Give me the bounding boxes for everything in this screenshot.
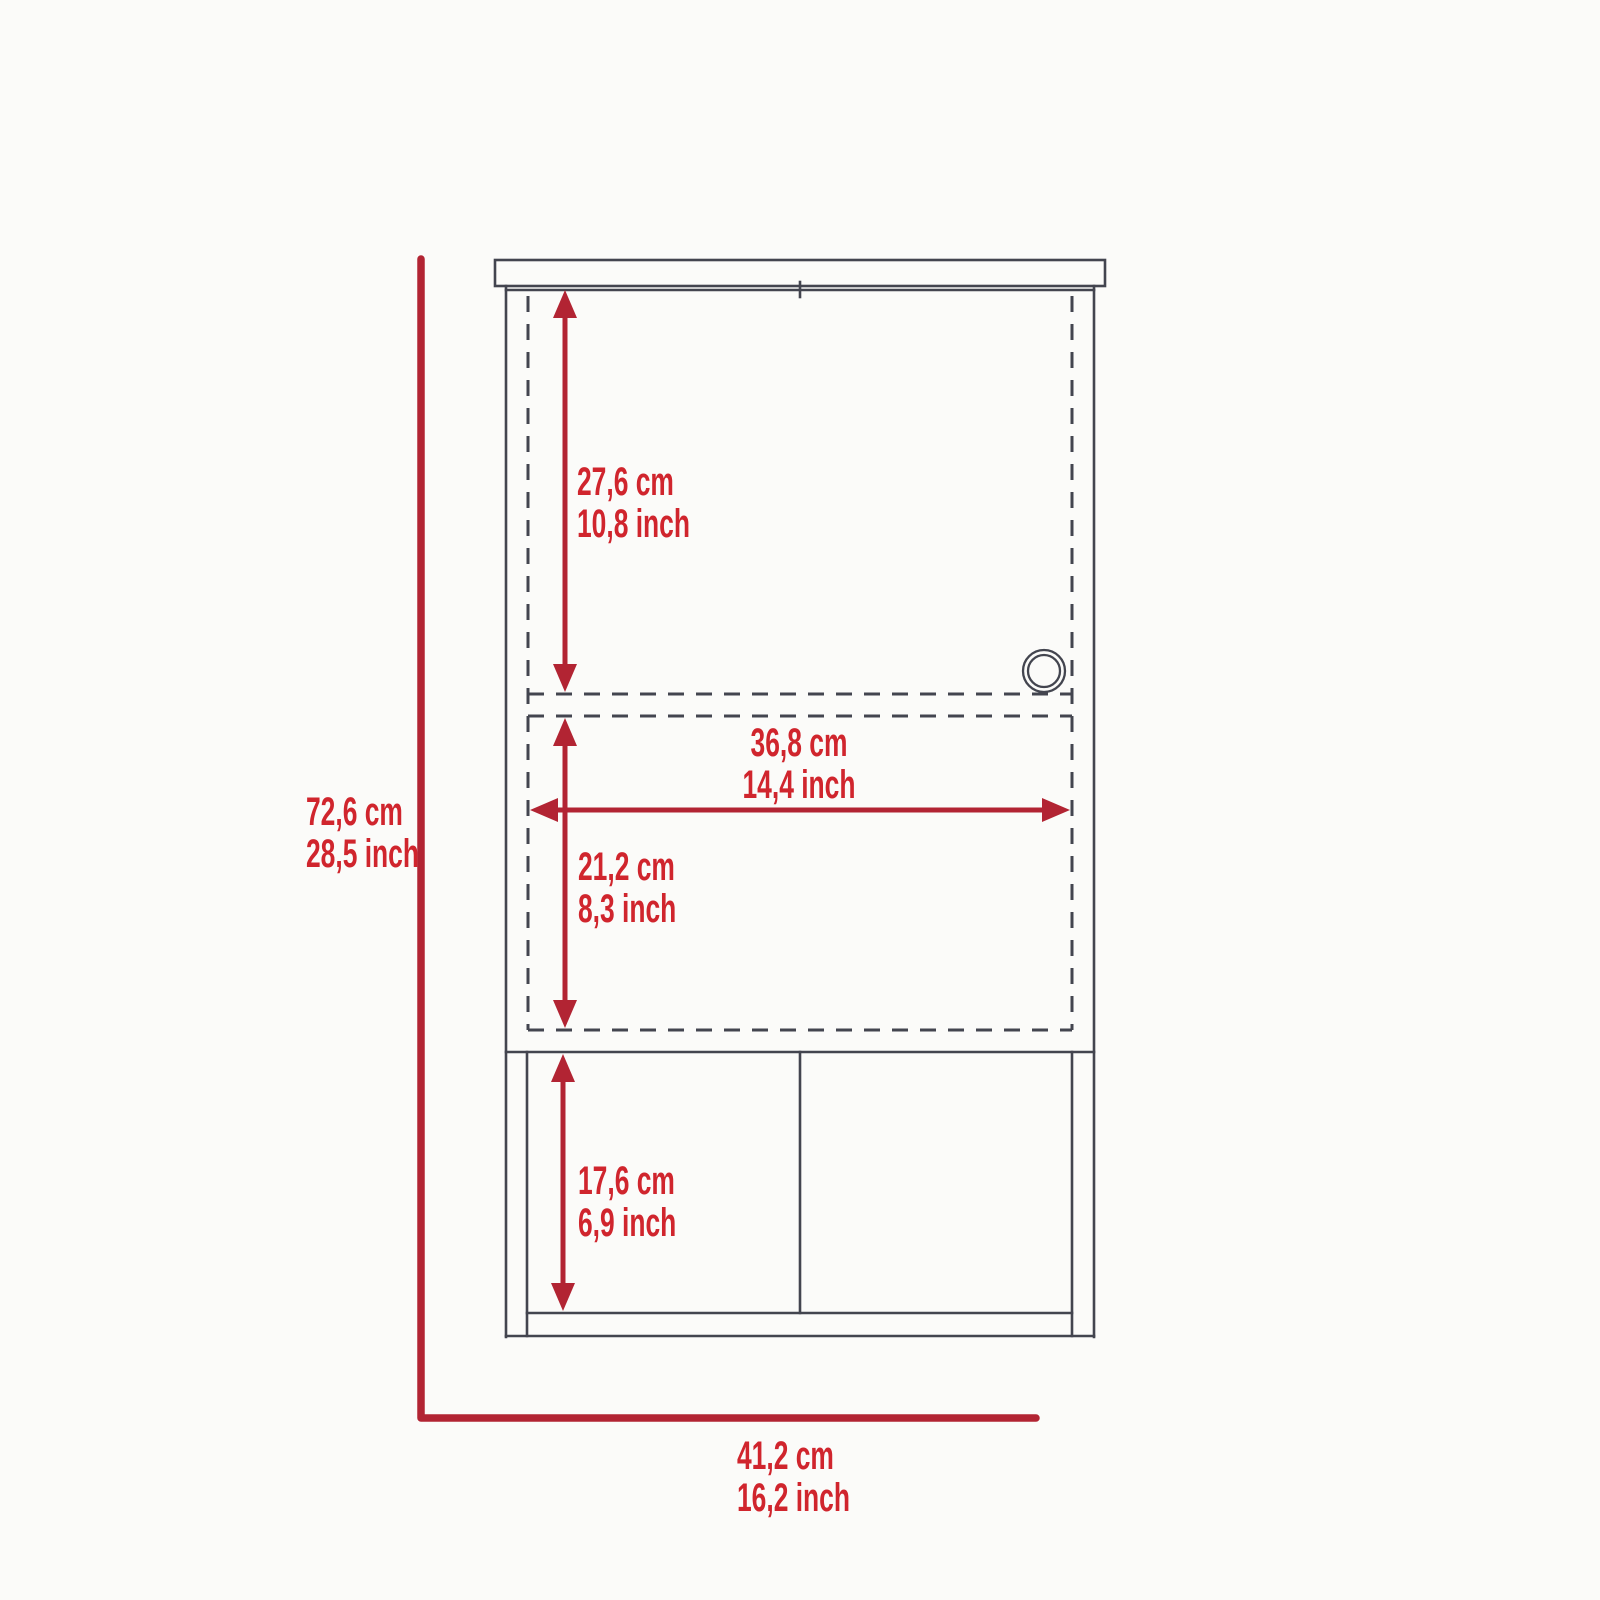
door-width-label: 36,8 cm 14,4 inch (713, 722, 884, 806)
door-width-inch: 14,4 inch (743, 764, 856, 806)
overall-height-inch: 28,5 inch (306, 833, 419, 875)
lower-section-height-label: 17,6 cm 6,9 inch (578, 1160, 727, 1244)
middle-section-height-arrow (553, 718, 577, 1028)
overall-width-label: 41,2 cm 16,2 inch (737, 1435, 908, 1519)
overall-height-label: 72,6 cm 28,5 inch (306, 791, 477, 875)
door-handle-icon (1023, 650, 1065, 692)
lower-section-height-inch: 6,9 inch (578, 1202, 676, 1244)
dimension-diagram: 27,6 cm 10,8 inch 36,8 cm 14,4 inch 21,2… (0, 0, 1600, 1600)
lower-section-height-arrow (551, 1054, 575, 1311)
reference-axis-lines (421, 259, 1036, 1418)
upper-door-height-inch: 10,8 inch (577, 503, 690, 545)
middle-section-height-cm: 21,2 cm (578, 846, 676, 888)
upper-door-height-arrow (553, 290, 577, 692)
door-width-cm: 36,8 cm (743, 722, 856, 764)
overall-width-cm: 41,2 cm (737, 1435, 850, 1477)
upper-door-height-cm: 27,6 cm (577, 461, 690, 503)
overall-width-inch: 16,2 inch (737, 1477, 850, 1519)
lower-section-height-cm: 17,6 cm (578, 1160, 676, 1202)
middle-section-height-label: 21,2 cm 8,3 inch (578, 846, 727, 930)
middle-section-height-inch: 8,3 inch (578, 888, 676, 930)
upper-door-height-label: 27,6 cm 10,8 inch (577, 461, 748, 545)
overall-height-cm: 72,6 cm (306, 791, 419, 833)
